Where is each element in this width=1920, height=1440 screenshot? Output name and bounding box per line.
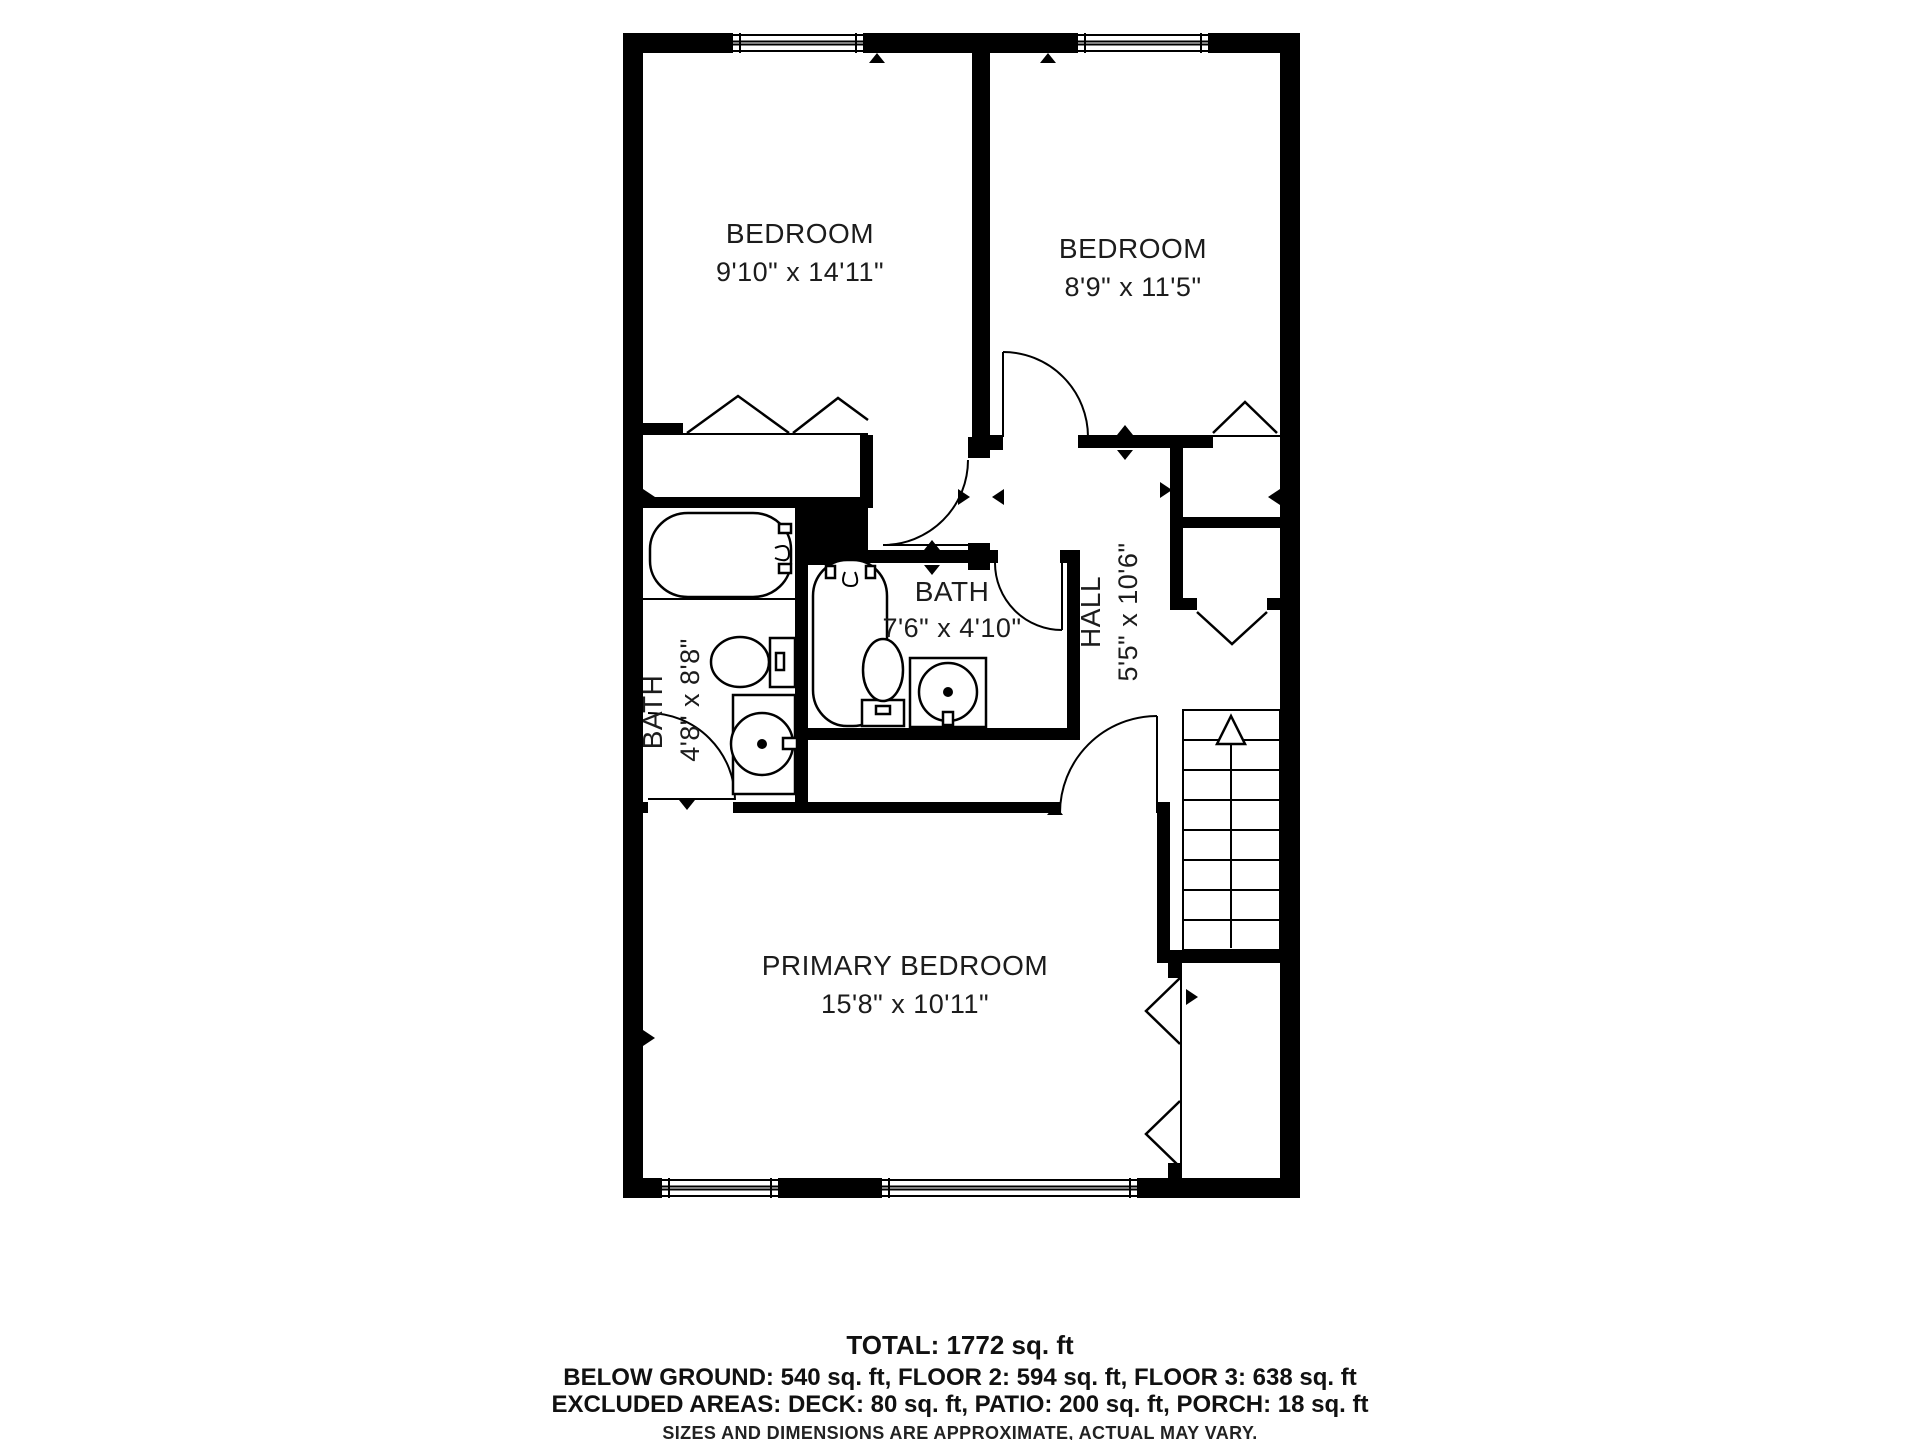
label-bath-middle-name: BATH [915, 576, 990, 607]
stair-up-arrow [1217, 716, 1245, 744]
label-primary-bedroom-name: PRIMARY BEDROOM [762, 950, 1049, 981]
label-bedroom-right-name: BEDROOM [1059, 233, 1207, 264]
wall-bath-mid-top-c [1060, 550, 1080, 563]
window-bedroom-right [1078, 33, 1208, 53]
marker-primary-closet [1186, 989, 1198, 1005]
marker-right-wall [1268, 489, 1280, 505]
label-bedroom-left-name: BEDROOM [726, 218, 874, 249]
room-labels: BEDROOM 9'10" x 14'11" BEDROOM 8'9" x 11… [637, 218, 1207, 1019]
wall-vestibule-a [968, 437, 990, 458]
label-bath-left-name: BATH [637, 675, 668, 750]
summary-block: TOTAL: 1772 sq. ft BELOW GROUND: 540 sq.… [552, 1330, 1369, 1440]
door-bedroom-right [1003, 352, 1088, 437]
wall-bath-mid-top-a [808, 550, 968, 563]
summary-floors: BELOW GROUND: 540 sq. ft, FLOOR 2: 594 s… [563, 1364, 1356, 1391]
floor-plan-canvas: BEDROOM 9'10" x 14'11" BEDROOM 8'9" x 11… [0, 0, 1920, 1440]
door-bedroom-left [883, 460, 968, 545]
label-bath-left-dims: 4'8" x 8'8" [675, 638, 705, 762]
wall-vestibule-b [968, 543, 990, 570]
floor-plan-page: BEDROOM 9'10" x 14'11" BEDROOM 8'9" x 11… [0, 0, 1920, 1440]
wall-closet-divider [1183, 517, 1280, 528]
marker-top-left-room [869, 53, 885, 63]
bifold-closet-left-2 [793, 398, 868, 433]
bifold-closet-primary-1 [1146, 978, 1180, 1044]
window-primary-left [662, 1178, 778, 1198]
summary-excluded: EXCLUDED AREAS: DECK: 80 sq. ft, PATIO: … [552, 1391, 1369, 1418]
staircase [1183, 710, 1280, 950]
wall-bedroom-right-bottom-a [990, 435, 1003, 450]
label-bath-middle-dims: 7'6" x 4'10" [882, 613, 1021, 643]
marker-divider-right [992, 489, 1004, 505]
label-bedroom-right-dims: 8'9" x 11'5" [1064, 272, 1201, 302]
wall-bath-mid-top-b [990, 550, 998, 563]
window-bedroom-left [733, 33, 863, 53]
wall-stair-west [1157, 802, 1170, 963]
window-primary-right [882, 1178, 1137, 1198]
bifold-closet-bedroom-right [1213, 402, 1277, 433]
marker-primary-left-wall [643, 1030, 655, 1046]
wall-stair-bottom [1170, 950, 1280, 963]
sink-left [731, 695, 797, 794]
bifold-closet-hall [1197, 612, 1267, 644]
wall-left [623, 33, 643, 1198]
bifold-closet-primary-2 [1146, 1101, 1180, 1167]
wall-bedrooms-divider [972, 53, 990, 437]
wall-hall-closet-side [1170, 448, 1183, 610]
marker-divider-left [958, 489, 970, 505]
summary-disclaimer: SIZES AND DIMENSIONS ARE APPROXIMATE, AC… [662, 1423, 1257, 1440]
summary-total: TOTAL: 1772 sq. ft [846, 1330, 1074, 1360]
label-primary-bedroom-dims: 15'8" x 10'11" [821, 989, 989, 1019]
sink-middle [910, 658, 986, 727]
bifold-closet-left-1 [687, 396, 789, 433]
marker-mid-wall-down [924, 565, 940, 575]
wall-primary-top-b [733, 802, 1060, 813]
wall-closet-left-bottom [643, 497, 868, 508]
label-bedroom-left-dims: 9'10" x 14'11" [716, 257, 884, 287]
label-hall-name: HALL [1075, 576, 1106, 648]
wall-bedroom-left-stub [643, 423, 683, 435]
wall-bath-mid-bottom [790, 728, 1080, 740]
marker-hall-top-down [1117, 450, 1133, 460]
wall-closet-strip-stub-top [1168, 963, 1182, 978]
wall-bedroom-right-bottom-b [1078, 435, 1213, 448]
marker-top-right-room [1040, 53, 1056, 63]
label-hall-dims: 5'5" x 10'6" [1113, 542, 1143, 681]
marker-hall-top-up [1117, 425, 1133, 435]
wall-closet-left-side [860, 435, 873, 508]
toilet-left [711, 637, 795, 687]
bathtub-left [650, 513, 791, 597]
wall-hall-closet-bottom-b [1267, 598, 1280, 610]
wall-right [1280, 33, 1300, 1198]
marker-bath-left-door [679, 800, 695, 810]
toilet-middle [862, 639, 904, 726]
wall-hall-closet-bottom-a [1183, 598, 1197, 610]
wall-primary-top-a [643, 802, 648, 813]
